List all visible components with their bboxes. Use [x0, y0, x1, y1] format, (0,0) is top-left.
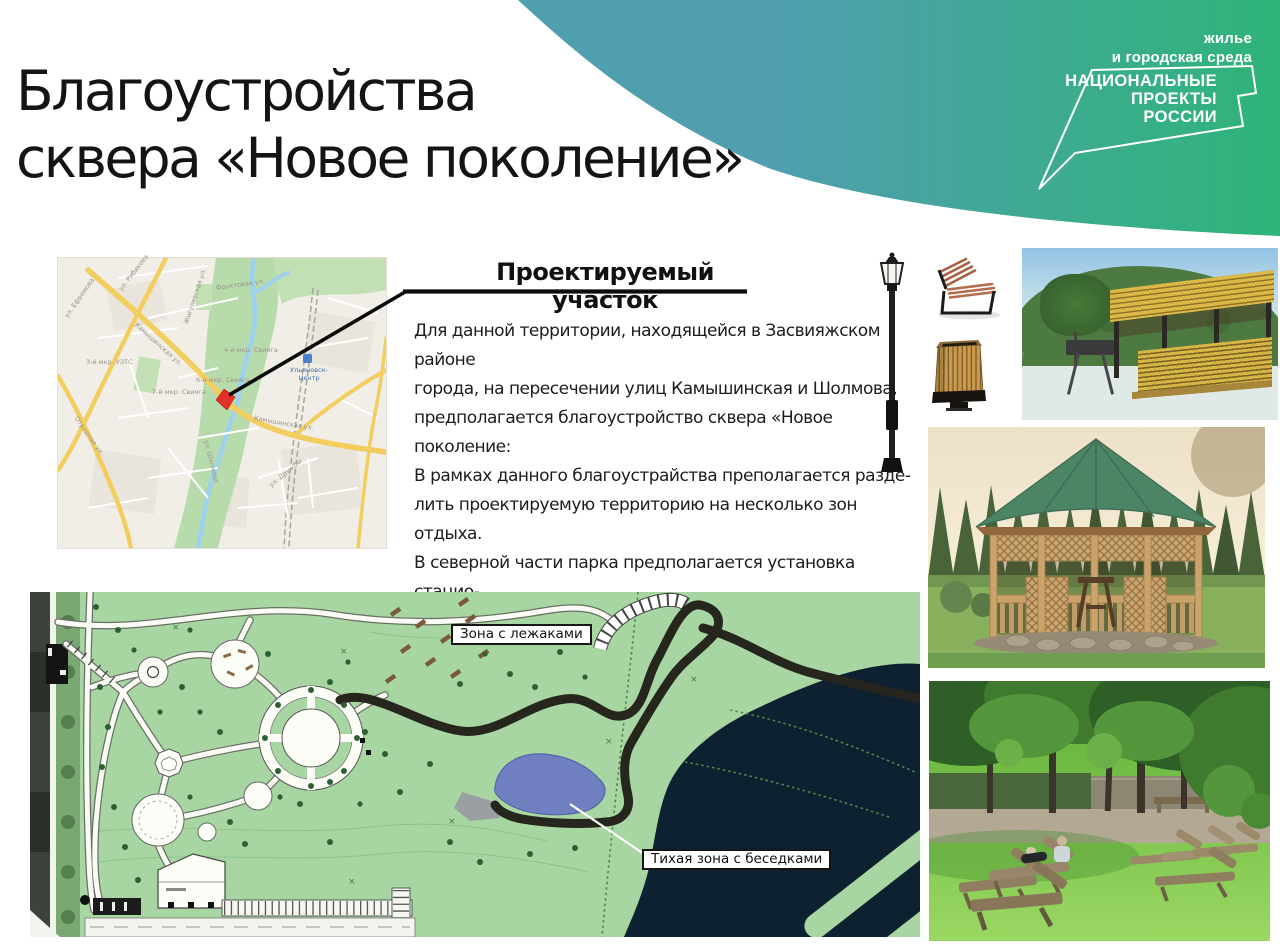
site-plan: × × × × × × Зона с лежаками Тихая зона с…	[30, 592, 920, 937]
svg-text:×: ×	[448, 817, 456, 827]
bench-back-slats	[940, 259, 975, 286]
svg-text:×: ×	[690, 675, 698, 685]
bench-icon	[931, 251, 1005, 323]
page-title: Благоустройства сквера «Новое поколение»	[16, 58, 743, 192]
map-street-label: 6-й мкр. Свияга	[196, 376, 250, 384]
park-loungers-photo	[929, 681, 1270, 941]
map-street-label: 4-й мкр. Свияга	[224, 346, 278, 354]
bottom-road	[85, 918, 415, 937]
station-icon	[303, 354, 312, 363]
svg-text:×: ×	[348, 877, 356, 887]
section-heading: Проектируемый участок	[455, 258, 755, 314]
svg-text:×: ×	[172, 623, 180, 633]
map-graphic	[58, 258, 386, 548]
brand-logo: НАЦИОНАЛЬНЫЕ ПРОЕКТЫ РОССИИ	[1065, 72, 1217, 126]
garden-gazebo-photo	[928, 427, 1265, 668]
svg-text:×: ×	[605, 737, 613, 747]
location-map: ул. Рябикова Камышинская ул. Камышинская…	[58, 258, 386, 548]
plan-left-strip	[30, 592, 50, 937]
bench-seat-slats	[948, 284, 995, 298]
label-loungers-zone: Зона с лежаками	[451, 624, 592, 645]
poster-page: жилье и городская среда НАЦИОНАЛЬНЫЕ ПРО…	[0, 0, 1280, 951]
logo-line: РОССИИ	[1065, 108, 1217, 126]
map-street-label: 3-й мкр. УЗТС	[86, 358, 133, 366]
map-station-label: Ульяновск- Центр	[281, 366, 337, 382]
svg-text:×: ×	[340, 647, 348, 657]
trash-bin-icon	[926, 332, 992, 412]
logo-line: ПРОЕКТЫ	[1065, 90, 1217, 108]
label-quiet-zone: Тихая зона с беседками	[642, 849, 831, 870]
wooden-pavilion-photo	[1022, 248, 1278, 420]
logo-line: НАЦИОНАЛЬНЫЕ	[1065, 72, 1217, 90]
street-lamp-icon	[864, 250, 920, 475]
map-street-label: 7-й мкр. Свияга	[152, 388, 206, 396]
